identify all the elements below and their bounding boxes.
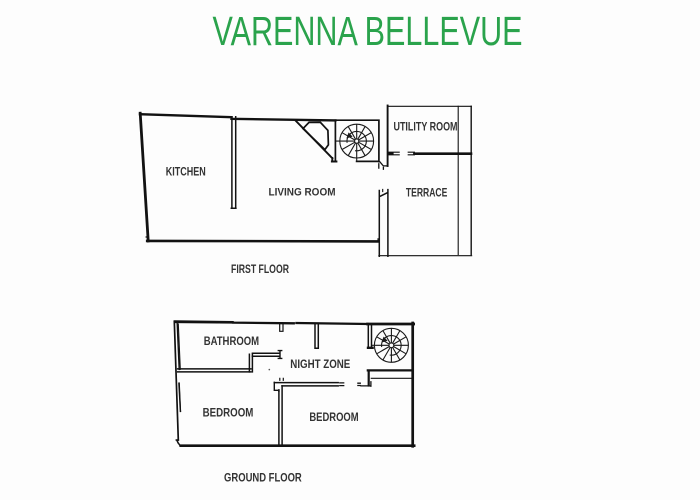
svg-text:UTILITY ROOM: UTILITY ROOM: [394, 121, 458, 133]
svg-text:BEDROOM: BEDROOM: [309, 412, 358, 424]
svg-text:BATHROOM: BATHROOM: [204, 336, 259, 348]
svg-text:LIVING ROOM: LIVING ROOM: [269, 187, 336, 199]
svg-text:NIGHT ZONE: NIGHT ZONE: [290, 359, 350, 371]
svg-text:TERRACE: TERRACE: [406, 187, 448, 199]
svg-text:VARENNA BELLEVUE: VARENNA BELLEVUE: [213, 8, 523, 54]
svg-text:GROUND FLOOR: GROUND FLOOR: [224, 473, 302, 485]
svg-text:BEDROOM: BEDROOM: [203, 408, 254, 420]
svg-text:FIRST FLOOR: FIRST FLOOR: [231, 264, 290, 276]
svg-text:KITCHEN: KITCHEN: [166, 166, 206, 178]
